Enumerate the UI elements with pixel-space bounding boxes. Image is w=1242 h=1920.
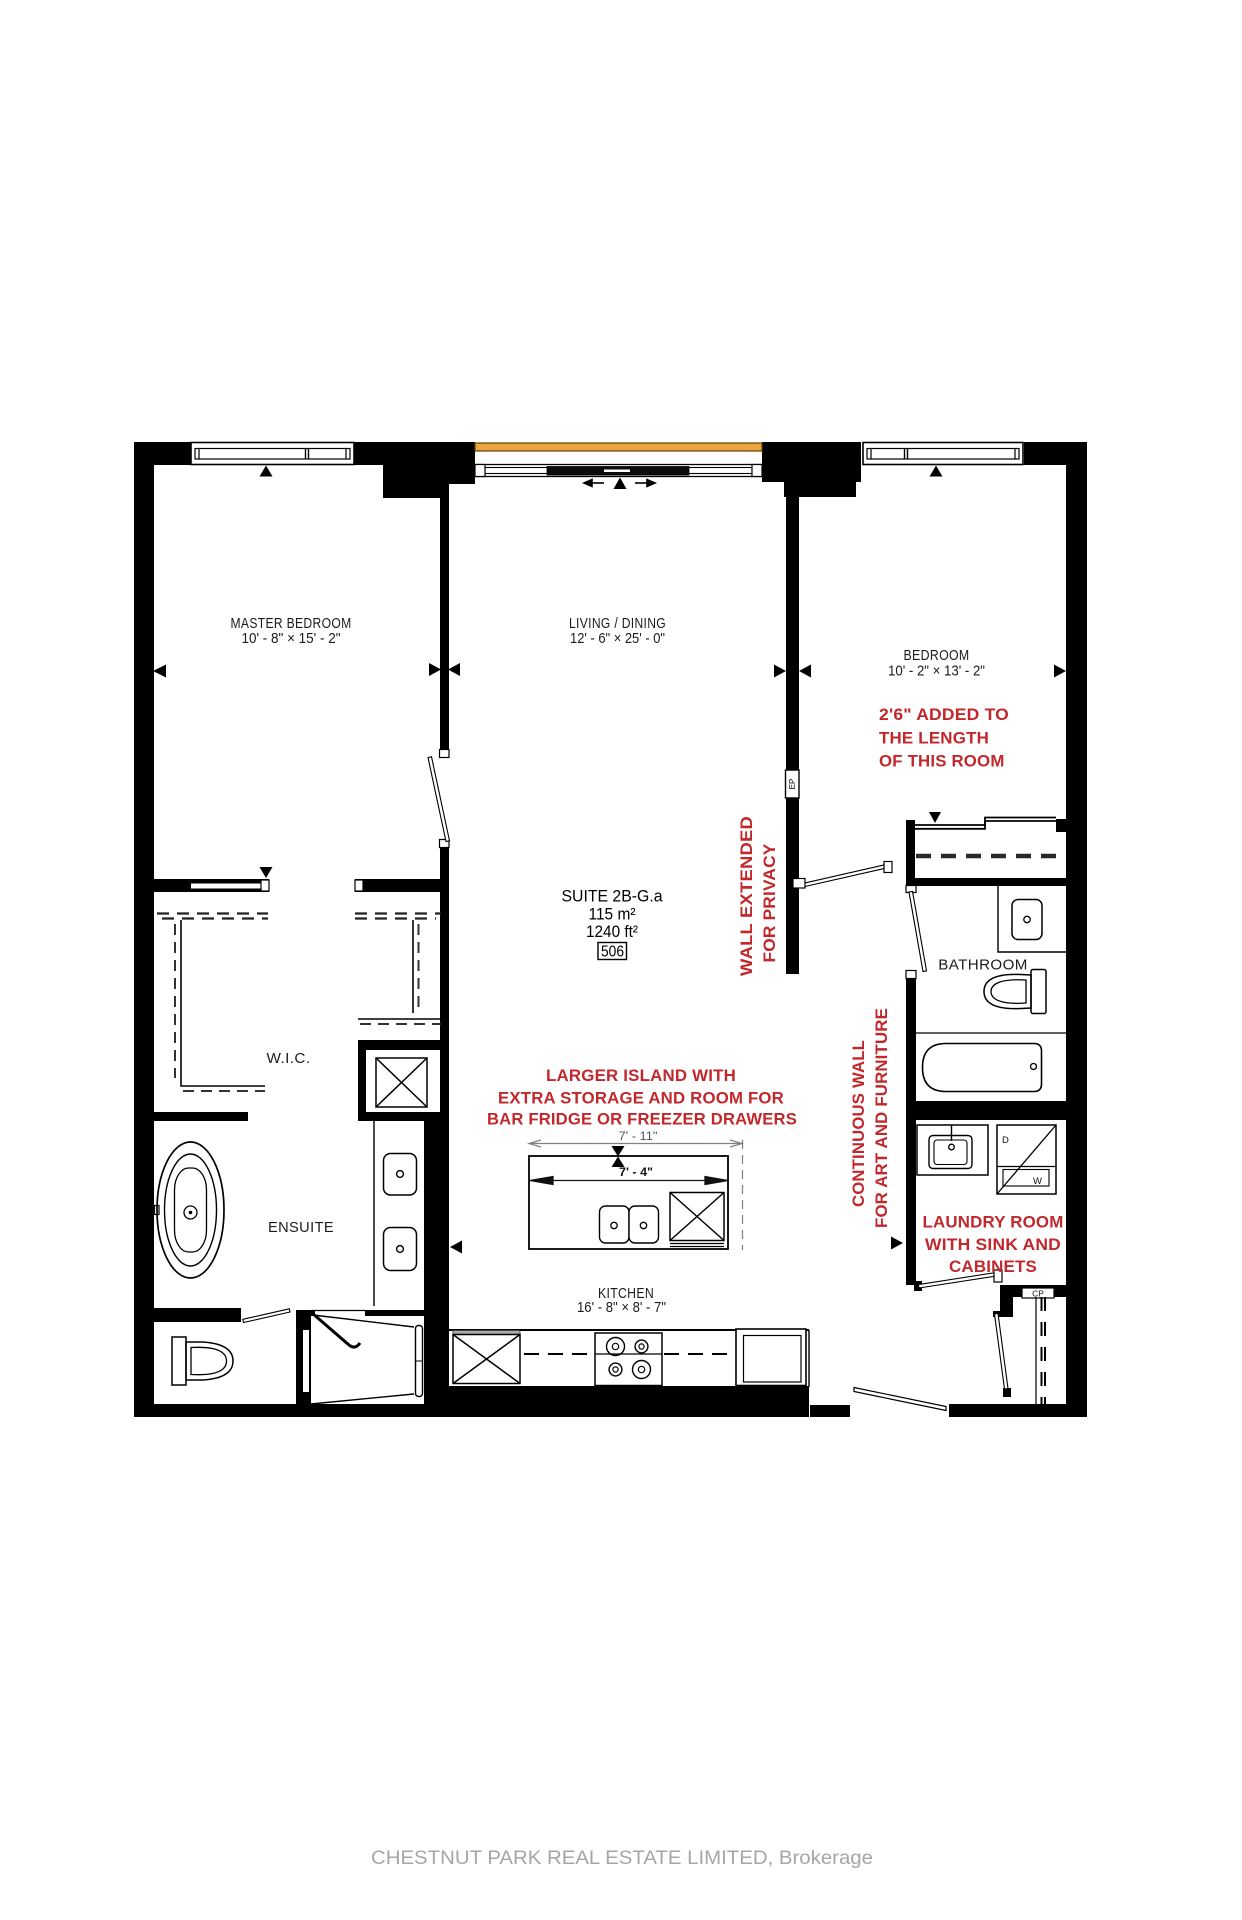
svg-text:7' - 11": 7' - 11" [619, 1131, 658, 1143]
svg-text:BAR FRIDGE OR FREEZER DRAWERS: BAR FRIDGE OR FREEZER DRAWERS [487, 1110, 797, 1129]
svg-text:SUITE 2B-G.a: SUITE 2B-G.a [562, 888, 664, 906]
svg-text:D: D [1002, 1135, 1009, 1146]
svg-text:506: 506 [601, 944, 624, 961]
svg-text:LARGER ISLAND WITH: LARGER ISLAND WITH [546, 1066, 736, 1085]
svg-text:CONTINUOUS WALL: CONTINUOUS WALL [849, 1040, 868, 1207]
svg-text:1240 ft²: 1240 ft² [586, 923, 638, 941]
svg-text:FOR PRIVACY: FOR PRIVACY [760, 843, 779, 962]
svg-text:115 m²: 115 m² [589, 906, 636, 924]
svg-text:WALL EXTENDED: WALL EXTENDED [737, 816, 756, 976]
svg-text:CHESTNUT PARK REAL ESTATE LIMI: CHESTNUT PARK REAL ESTATE LIMITED, Broke… [371, 1847, 873, 1869]
svg-text:12' - 6" × 25' - 0": 12' - 6" × 25' - 0" [570, 630, 665, 647]
svg-text:BEDROOM: BEDROOM [904, 647, 970, 664]
svg-text:EP: EP [788, 779, 797, 790]
svg-text:WITH SINK AND: WITH SINK AND [925, 1235, 1061, 1254]
svg-text:CABINETS: CABINETS [949, 1257, 1037, 1276]
svg-text:ENSUITE: ENSUITE [268, 1219, 334, 1236]
svg-text:BATHROOM: BATHROOM [938, 957, 1028, 974]
svg-text:W: W [1033, 1176, 1042, 1187]
svg-text:THE LENGTH: THE LENGTH [879, 729, 989, 748]
svg-text:10' - 8" × 15' - 2": 10' - 8" × 15' - 2" [242, 630, 341, 647]
svg-text:FOR ART AND FURNITURE: FOR ART AND FURNITURE [872, 1008, 891, 1228]
svg-text:16' - 8" × 8' - 7": 16' - 8" × 8' - 7" [577, 1299, 666, 1316]
svg-text:EXTRA STORAGE AND ROOM FOR: EXTRA STORAGE AND ROOM FOR [498, 1089, 784, 1108]
svg-text:LAUNDRY ROOM: LAUNDRY ROOM [923, 1213, 1064, 1232]
svg-text:2'6" ADDED TO: 2'6" ADDED TO [879, 705, 1009, 724]
svg-text:W.I.C.: W.I.C. [267, 1050, 311, 1067]
svg-text:10' - 2" × 13' - 2": 10' - 2" × 13' - 2" [888, 663, 985, 680]
svg-text:OF THIS ROOM: OF THIS ROOM [879, 752, 1005, 771]
svg-text:7' - 4": 7' - 4" [619, 1167, 653, 1179]
